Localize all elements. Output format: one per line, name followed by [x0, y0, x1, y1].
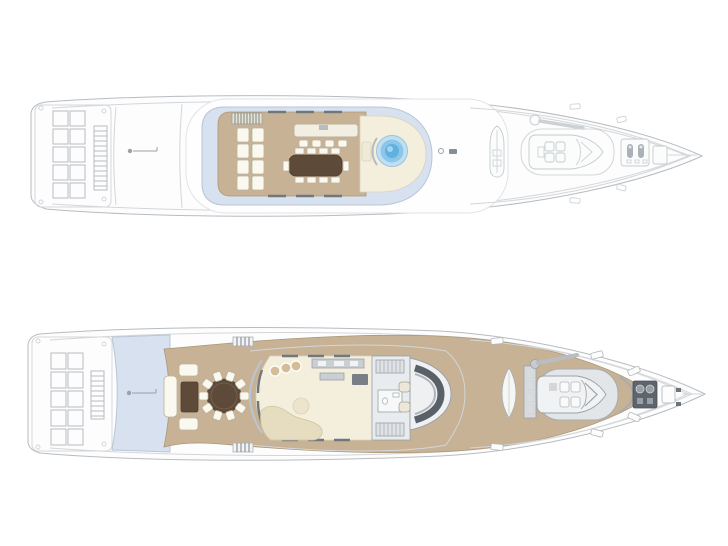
tender-console — [549, 383, 557, 391]
bow-pad — [662, 386, 675, 403]
bar-sink — [319, 125, 328, 130]
edge-hatch — [570, 198, 580, 204]
sofa — [164, 376, 177, 417]
deck-lockers — [524, 366, 536, 418]
bow-cleat — [676, 388, 681, 392]
galley-appliance — [350, 361, 358, 366]
anchor-windlass — [633, 381, 657, 408]
windlass-gear — [647, 398, 653, 404]
deck-plans-svg — [0, 0, 728, 546]
dining-table — [289, 155, 342, 176]
lounger — [237, 176, 249, 190]
dining-chair — [319, 177, 328, 183]
dining-chair — [331, 148, 340, 154]
bar-stool — [338, 140, 347, 147]
dining-chair — [307, 148, 316, 154]
windlass-drum — [636, 385, 644, 393]
armchair — [179, 418, 198, 430]
sundeck — [202, 107, 432, 205]
bar-stool — [312, 140, 321, 147]
cabinet-unit — [352, 374, 368, 385]
tender-seat — [556, 153, 565, 162]
deck-plan-canvas — [0, 0, 728, 546]
dining-chair — [331, 177, 340, 183]
dining-chair — [319, 148, 328, 154]
wc — [378, 390, 402, 412]
stairs-down — [376, 423, 404, 436]
dining-chair — [283, 161, 289, 171]
sun-deck-plan — [31, 96, 702, 217]
tender-seat — [571, 397, 580, 407]
salon — [256, 356, 372, 440]
chair — [199, 392, 208, 400]
lounger — [237, 128, 249, 142]
winch-icon — [449, 149, 457, 154]
bar-stool — [299, 140, 308, 147]
toilet — [383, 398, 388, 404]
galley-appliance — [334, 361, 344, 366]
sink — [393, 393, 399, 397]
lounger — [252, 128, 264, 142]
round-rug — [293, 398, 309, 414]
bar-stool — [325, 140, 334, 147]
tender-seat — [560, 397, 569, 407]
edge-hatch — [617, 116, 627, 123]
edge-hatch — [616, 184, 626, 191]
tender-seat — [545, 142, 554, 151]
pouf — [270, 366, 280, 376]
mid-corridor — [372, 356, 410, 440]
chair — [240, 392, 249, 400]
jacuzzi-highlight — [387, 146, 393, 152]
lounger — [237, 160, 249, 174]
dining-chair — [295, 177, 304, 183]
tender-seat — [556, 142, 565, 151]
edge-hatch — [570, 104, 580, 110]
armchair — [179, 364, 198, 376]
galley-island — [320, 373, 344, 380]
dining-chair — [307, 177, 316, 183]
galley-sink — [318, 361, 326, 366]
anchor-windlass — [621, 139, 649, 166]
foredeck-small-boat — [490, 126, 504, 177]
tender-seat — [545, 153, 554, 162]
pouf — [291, 361, 301, 371]
coffee-table — [181, 382, 198, 412]
lounger — [252, 176, 264, 190]
main-deck-plan — [28, 327, 705, 460]
windlass-gear — [637, 398, 643, 404]
lounger — [237, 144, 249, 158]
jacuzzi-step — [362, 142, 371, 161]
bow-pad — [653, 146, 667, 164]
tender-seat — [571, 382, 580, 392]
windlass-drum — [646, 385, 654, 393]
tender-seat — [560, 382, 569, 392]
bow-cleat — [676, 402, 681, 406]
helm-chair — [399, 402, 410, 412]
lounger — [252, 160, 264, 174]
helm-chair — [399, 382, 410, 392]
stair-hatch — [232, 113, 262, 124]
dining-chair — [295, 148, 304, 154]
tender — [536, 369, 618, 420]
edge-hatch — [491, 337, 504, 344]
dining-chair — [343, 161, 349, 171]
pouf — [281, 363, 291, 373]
edge-hatch — [491, 443, 504, 450]
lounger — [252, 144, 264, 158]
stairs-up — [376, 360, 404, 373]
